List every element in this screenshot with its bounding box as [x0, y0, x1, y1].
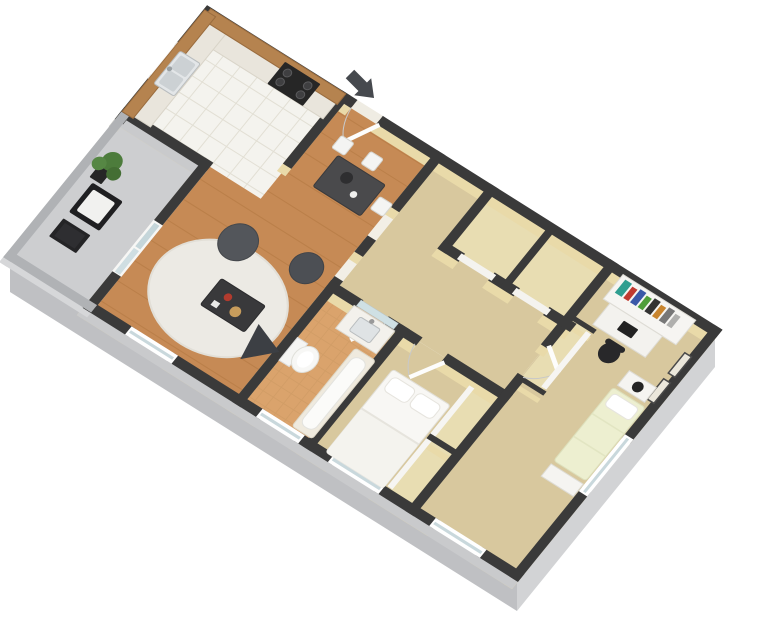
floor-plan-svg [0, 0, 768, 622]
floor-plan-image [0, 0, 768, 622]
